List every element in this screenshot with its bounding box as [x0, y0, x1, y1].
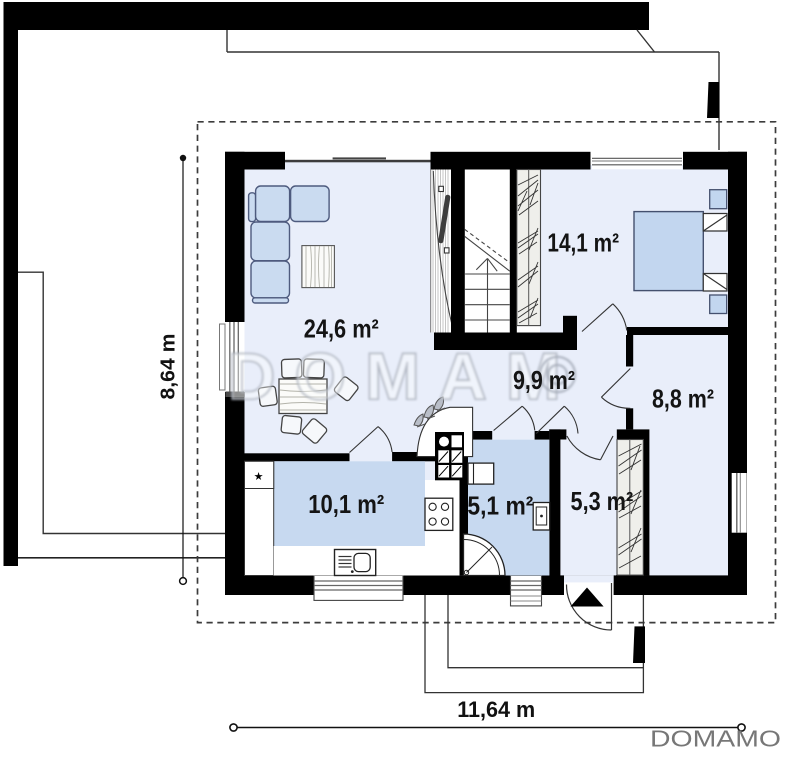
svg-text:8,8 m²: 8,8 m² [652, 384, 714, 414]
svg-text:5,1 m²: 5,1 m² [467, 491, 533, 521]
svg-text:10,1 m²: 10,1 m² [308, 489, 384, 519]
svg-text:24,6 m²: 24,6 m² [304, 314, 379, 344]
svg-text:14,1 m²: 14,1 m² [547, 228, 619, 258]
svg-text:11,64 m: 11,64 m [457, 697, 535, 722]
svg-text:8,64 m: 8,64 m [157, 334, 180, 400]
svg-text:9,9 m²: 9,9 m² [513, 365, 575, 395]
svg-text:★: ★ [254, 471, 264, 483]
svg-text:5,3 m²: 5,3 m² [571, 486, 634, 516]
svg-text:DOMAMO: DOMAMO [650, 726, 781, 752]
